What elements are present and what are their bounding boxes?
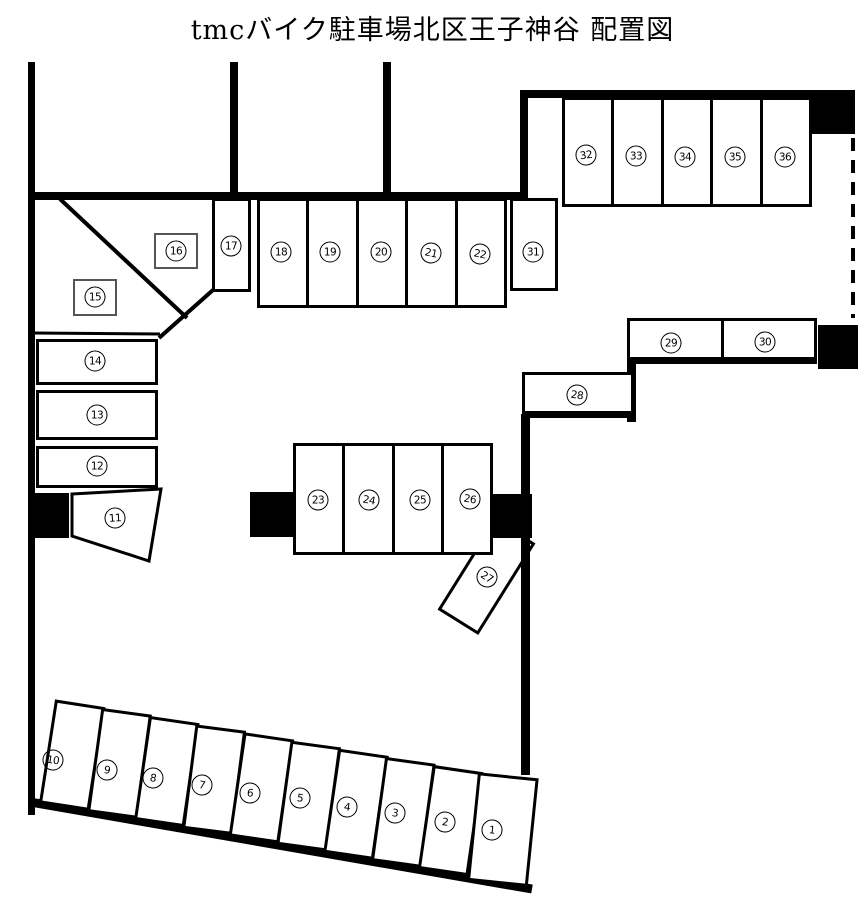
wall-upright (520, 90, 528, 198)
stall-label-31: 31 (523, 242, 544, 263)
wall-stub-1 (230, 62, 238, 196)
parking-layout-diagram: tmcバイク駐車場北区王子神谷 配置図 (0, 0, 865, 901)
stall-label-25: 25 (410, 490, 431, 511)
stall-label-36: 36 (775, 147, 796, 168)
stall-label-19: 19 (320, 242, 341, 263)
stall-label-20: 20 (371, 242, 392, 263)
stall-label-14: 14 (85, 351, 106, 372)
stall-label-30: 30 (755, 332, 776, 353)
stall-label-16: 16 (166, 241, 187, 262)
pillar-left-of-11 (28, 493, 69, 538)
stall-label-18: 18 (271, 242, 292, 263)
zone15-bottom-line (33, 333, 160, 334)
stall-label-17: 17 (221, 236, 242, 257)
stall-label-13: 13 (87, 405, 108, 426)
pillar-top-right (810, 90, 855, 134)
wall-stub-2 (383, 62, 391, 196)
stall-label-15: 15 (85, 287, 106, 308)
stall-label-23: 23 (308, 490, 329, 511)
pillar-left-of-23 (250, 492, 293, 537)
stall-label-29: 29 (661, 333, 682, 354)
pillar-right-mid (818, 325, 858, 369)
stall-label-34: 34 (675, 147, 696, 168)
stall-label-33: 33 (626, 146, 647, 167)
pillar-right-of-26 (492, 494, 532, 538)
stall-1 (469, 774, 537, 885)
stall-label-12: 12 (87, 456, 108, 477)
wall-center-vertical (521, 414, 530, 775)
stall-block-29-30 (627, 318, 817, 364)
stall-label-35: 35 (725, 147, 746, 168)
wall-left (28, 62, 35, 815)
